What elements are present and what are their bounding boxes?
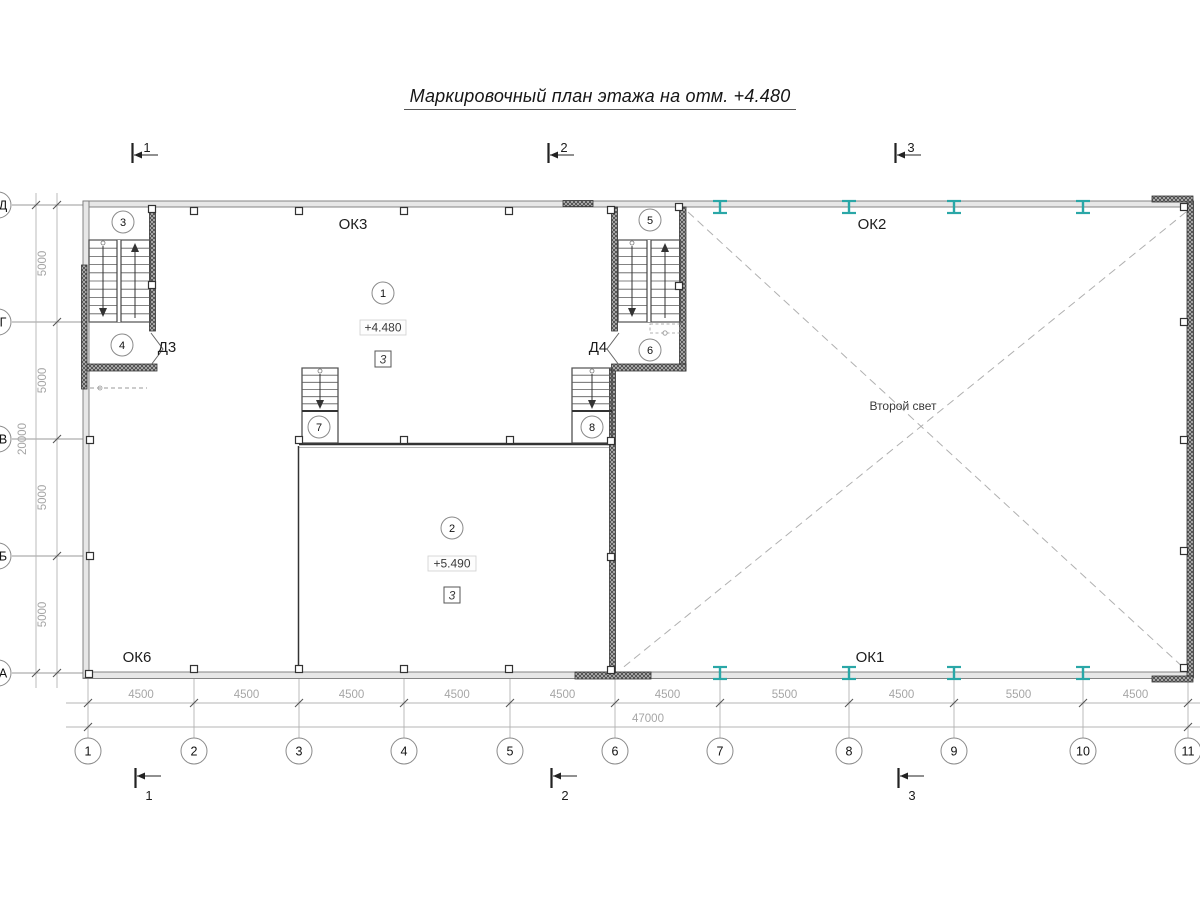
axis-column-label: 8 <box>846 745 853 759</box>
room-2-marking: 2 +5.490 3 <box>428 517 476 603</box>
section-label: 2 <box>561 788 568 803</box>
second-light-cross <box>620 212 1186 670</box>
door-d4-leaf <box>607 333 619 365</box>
door-label-d4: Д4 <box>589 339 608 356</box>
section-label: 3 <box>907 140 914 155</box>
wall-top-lintel <box>563 201 593 207</box>
dimension-lines: 4500450045004500450045005500450055004500… <box>17 193 1200 731</box>
axis-column-label: 4 <box>401 745 408 759</box>
dim-left-segment: 5000 <box>37 251 49 277</box>
room2-note: 3 <box>449 589 456 603</box>
plan-labels: ОК3 ОК2 ОК6 ОК1 Д3 Д4 Второй свет <box>123 216 937 666</box>
room2-mark: 2 <box>449 523 455 535</box>
dim-bottom-segment: 4500 <box>655 689 681 701</box>
dim-left-segment: 5000 <box>37 602 49 628</box>
room-1-marking: 1 +4.480 3 <box>360 282 406 367</box>
stairwell-1 <box>82 207 164 390</box>
outer-walls <box>83 196 1194 682</box>
window-label-ok2: ОК2 <box>858 216 887 233</box>
stairwell1-left-shaft-wall <box>82 265 88 389</box>
extension-lines <box>12 205 1188 738</box>
column-jamb-markers <box>86 204 1188 678</box>
position-mark-label: 3 <box>120 217 126 229</box>
axis-column-label: 11 <box>1182 745 1195 759</box>
section-mark-top-2: 2 <box>549 140 575 163</box>
dim-bottom-segment: 4500 <box>889 689 915 701</box>
axis-column-label: 9 <box>951 745 958 759</box>
axis-column-label: 2 <box>191 745 198 759</box>
stairwell2-left-wall <box>612 207 618 331</box>
dim-bottom-segment: 4500 <box>128 689 154 701</box>
dim-bottom-segment: 4500 <box>444 689 470 701</box>
window-label-ok6: ОК6 <box>123 649 152 666</box>
dim-bottom-segment: 4500 <box>550 689 576 701</box>
cross-diagonal-2 <box>688 212 1186 670</box>
stairwell1-bottom-wall <box>84 364 157 371</box>
dim-bottom-total: 47000 <box>632 713 664 725</box>
section-label: 2 <box>560 140 567 155</box>
room2-elevation: +5.490 <box>433 557 470 571</box>
room1-note: 3 <box>380 353 387 367</box>
section-mark-top-3: 3 <box>896 140 922 163</box>
section-label: 3 <box>908 788 915 803</box>
interior-walls <box>299 368 616 673</box>
dim-bottom-segment: 5500 <box>772 689 798 701</box>
section-marks: 1 2 3 1 <box>133 140 925 803</box>
window-label-ok3: ОК3 <box>339 216 368 233</box>
section-mark-bottom-3: 3 <box>899 768 925 803</box>
axis-row-label: Д <box>0 199 8 213</box>
wall-top <box>83 201 1193 207</box>
second-light-label: Второй свет <box>869 399 937 413</box>
axis-column-label: 3 <box>296 745 303 759</box>
wall-corner-top-right <box>1152 196 1193 202</box>
dim-bottom-segment: 4500 <box>234 689 260 701</box>
cross-diagonal-1 <box>620 212 1186 670</box>
axis-row-label: В <box>0 433 7 447</box>
dim-left-segment: 5000 <box>37 485 49 511</box>
axis-column-label: 7 <box>717 745 724 759</box>
section-label: 1 <box>145 788 152 803</box>
axis-column-label: 10 <box>1076 745 1090 759</box>
floor-plan-drawing: 4500450045004500450045005500450055004500… <box>0 0 1200 900</box>
dim-bottom-segment: 4500 <box>339 689 365 701</box>
axis-row-label: Б <box>0 550 7 564</box>
axis-column-label: 5 <box>507 745 514 759</box>
position-mark-label: 6 <box>647 345 653 357</box>
axis-column-label: 1 <box>85 745 92 759</box>
section-label: 1 <box>143 140 150 155</box>
position-mark-label: 7 <box>316 422 322 434</box>
room1-mark: 1 <box>380 288 386 300</box>
axis-row-label: А <box>0 667 8 681</box>
section-mark-top-1: 1 <box>133 140 159 163</box>
dim-bottom-segment: 4500 <box>1123 689 1149 701</box>
dim-left-total: 20000 <box>17 423 29 455</box>
position-mark-label: 4 <box>119 340 125 352</box>
stairwell2-landing-dashed <box>650 324 680 333</box>
stairwell2-bottom-wall <box>612 364 687 371</box>
axis-column-label: 6 <box>612 745 619 759</box>
axis-row-label: Г <box>0 316 7 330</box>
wall-corner-bottom-right <box>1152 676 1193 682</box>
floor-plan-canvas: Маркировочный план этажа на отм. +4.480 … <box>0 0 1200 900</box>
section-mark-bottom-1: 1 <box>136 768 162 803</box>
position-mark-label: 5 <box>647 215 653 227</box>
position-mark-label: 8 <box>589 422 595 434</box>
dim-bottom-segment: 5500 <box>1006 689 1032 701</box>
steel-column-beams <box>713 201 1090 679</box>
dim-left-segment: 5000 <box>37 368 49 394</box>
door-label-d3: Д3 <box>158 339 177 356</box>
window-label-ok1: ОК1 <box>856 649 885 666</box>
section-mark-bottom-2: 2 <box>552 768 578 803</box>
room1-elevation: +4.480 <box>364 321 401 335</box>
